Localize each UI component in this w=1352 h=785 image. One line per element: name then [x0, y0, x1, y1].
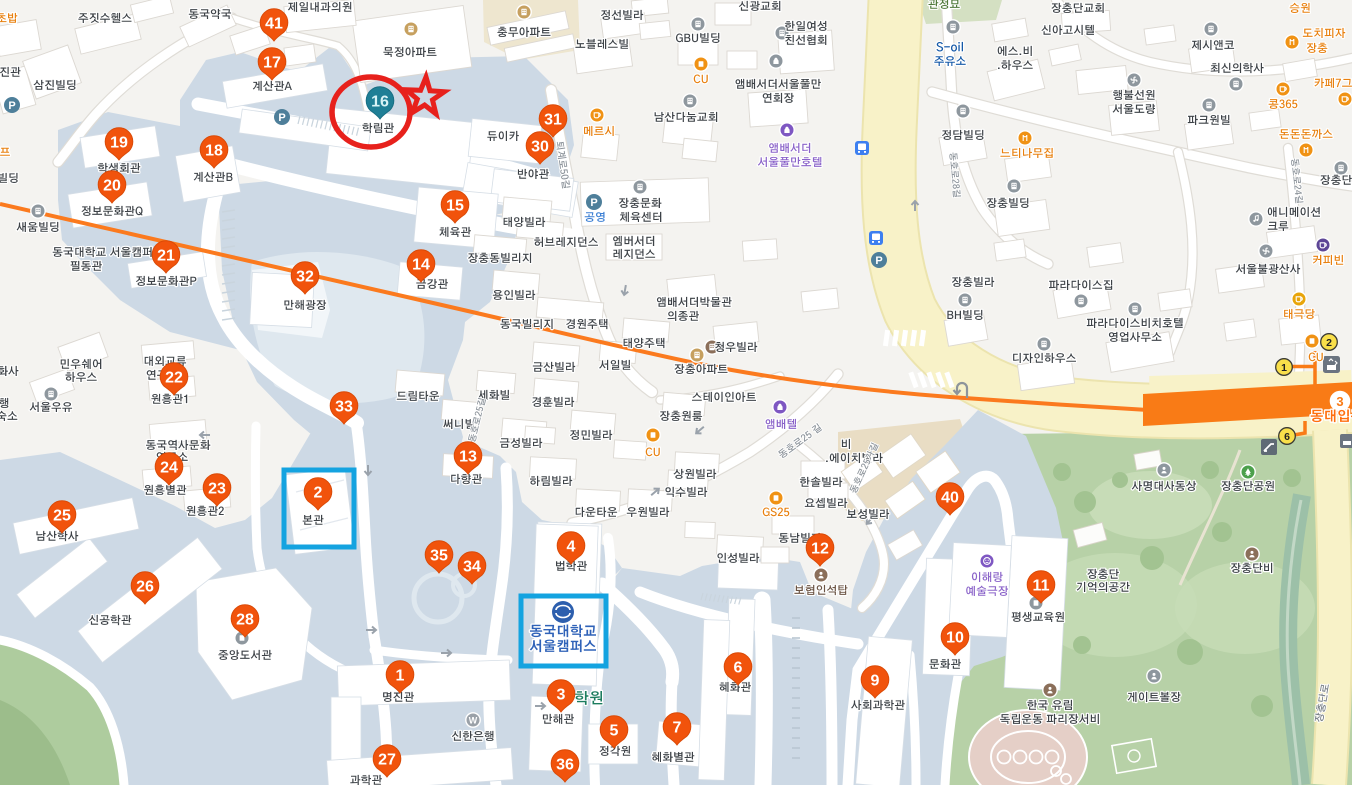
svg-text:6: 6	[1284, 431, 1290, 443]
svg-text:36: 36	[556, 756, 574, 773]
svg-text:21: 21	[157, 247, 175, 264]
svg-text:25: 25	[53, 507, 71, 524]
svg-text:P: P	[590, 197, 597, 209]
svg-text:22: 22	[165, 369, 183, 386]
svg-text:27: 27	[378, 751, 396, 768]
svg-text:1: 1	[1281, 362, 1287, 374]
svg-text:5: 5	[610, 722, 619, 739]
svg-text:3: 3	[557, 686, 566, 703]
svg-text:2: 2	[314, 484, 323, 501]
svg-text:23: 23	[208, 480, 226, 497]
svg-text:W: W	[469, 716, 478, 726]
svg-text:12: 12	[811, 540, 829, 557]
svg-text:3: 3	[1336, 394, 1343, 409]
svg-text:10: 10	[946, 629, 964, 646]
svg-text:32: 32	[296, 268, 314, 285]
svg-text:34: 34	[463, 558, 481, 575]
svg-text:P: P	[8, 100, 15, 112]
svg-text:9: 9	[871, 672, 880, 689]
svg-text:30: 30	[531, 138, 549, 155]
svg-text:4: 4	[567, 538, 576, 555]
svg-text:31: 31	[544, 111, 562, 128]
svg-text:1: 1	[396, 667, 405, 684]
svg-text:2: 2	[1326, 337, 1332, 349]
svg-text:40: 40	[941, 489, 959, 506]
svg-text:33: 33	[335, 398, 353, 415]
svg-text:11: 11	[1033, 577, 1050, 594]
svg-text:15: 15	[446, 197, 464, 214]
svg-text:6: 6	[734, 659, 743, 676]
svg-text:41: 41	[265, 15, 283, 32]
svg-text:24: 24	[160, 459, 178, 476]
svg-text:28: 28	[236, 611, 254, 628]
svg-text:20: 20	[103, 177, 121, 194]
svg-text:P: P	[278, 112, 285, 124]
svg-text:17: 17	[263, 54, 281, 71]
svg-text:35: 35	[430, 547, 448, 564]
svg-text:18: 18	[205, 142, 223, 159]
svg-text:26: 26	[136, 578, 154, 595]
svg-text:19: 19	[110, 134, 128, 151]
svg-text:16: 16	[371, 93, 389, 110]
svg-text:P: P	[875, 255, 882, 267]
svg-text:7: 7	[673, 719, 682, 736]
svg-text:13: 13	[459, 448, 477, 465]
svg-text:14: 14	[412, 256, 430, 273]
